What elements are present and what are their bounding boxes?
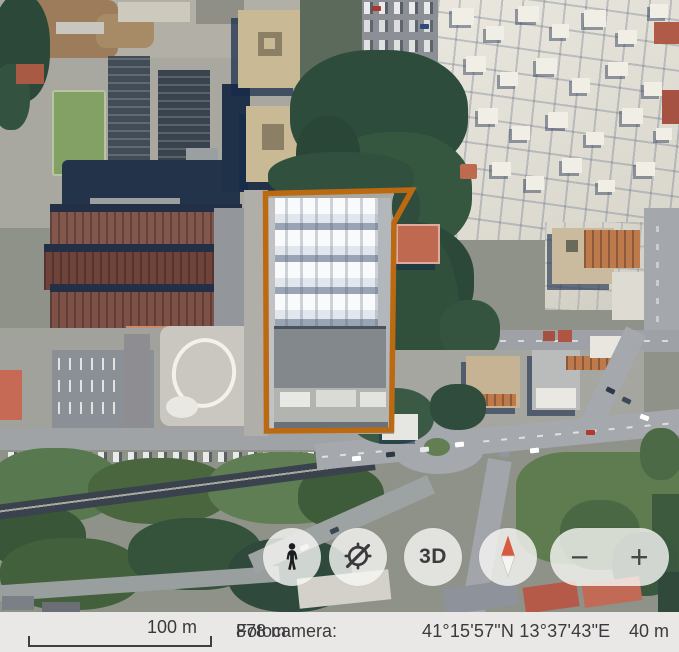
status-bar: 100 m Fotocamera: 878 m 41°15'57"N 13°37… [0, 612, 679, 652]
orange-roofs [584, 230, 640, 268]
satellite-map[interactable]: 3D − + [0, 0, 679, 612]
zoom-control: − + [550, 528, 669, 586]
courtyard-building [238, 10, 300, 88]
red-roof [662, 90, 679, 124]
camera-value: 878 m [236, 621, 286, 642]
vegetation [640, 428, 679, 480]
coordinates: 41°15'57"N 13°37'43"E [422, 621, 610, 642]
map-patch [196, 0, 244, 24]
car [500, 452, 509, 458]
compass-dial-slash-icon [341, 539, 375, 576]
red-roof [0, 370, 22, 420]
map-patch [56, 22, 104, 34]
car [352, 456, 361, 462]
shadow [274, 422, 388, 431]
car [420, 447, 429, 453]
red-roof [543, 331, 555, 341]
car [455, 442, 464, 448]
scale-label: 100 m [147, 617, 197, 638]
compass-button[interactable] [479, 528, 537, 586]
industrial-shed [108, 56, 150, 172]
red-roof [654, 22, 679, 44]
zoom-in-button[interactable]: + [610, 528, 670, 586]
north-needle-icon [488, 534, 528, 581]
altitude: 40 m [629, 621, 669, 642]
car [386, 452, 395, 458]
map-patch [214, 208, 246, 332]
red-roof-building [396, 224, 440, 264]
scale-bar [28, 636, 212, 647]
trees [392, 186, 420, 228]
red-roof [558, 330, 572, 342]
map-patch [16, 64, 44, 84]
red-roof [460, 164, 477, 179]
heading-off-button[interactable] [329, 528, 387, 586]
3d-label: 3D [419, 545, 447, 569]
maps-satellite-view: 3D − + 100 m Fotocamera: 878 m 41°15'57"… [0, 0, 679, 652]
zoom-out-button[interactable]: − [550, 528, 610, 586]
car [586, 430, 595, 435]
car [420, 24, 429, 29]
3d-mode-button[interactable]: 3D [404, 528, 462, 586]
map-patch [124, 334, 150, 430]
car [530, 448, 539, 454]
look-around-button[interactable] [263, 528, 321, 586]
highlighted-building-gray-roof [274, 326, 386, 388]
road [644, 208, 679, 350]
person-icon [277, 541, 307, 574]
car [372, 6, 381, 11]
map-patch [118, 2, 190, 22]
trees [430, 384, 486, 430]
